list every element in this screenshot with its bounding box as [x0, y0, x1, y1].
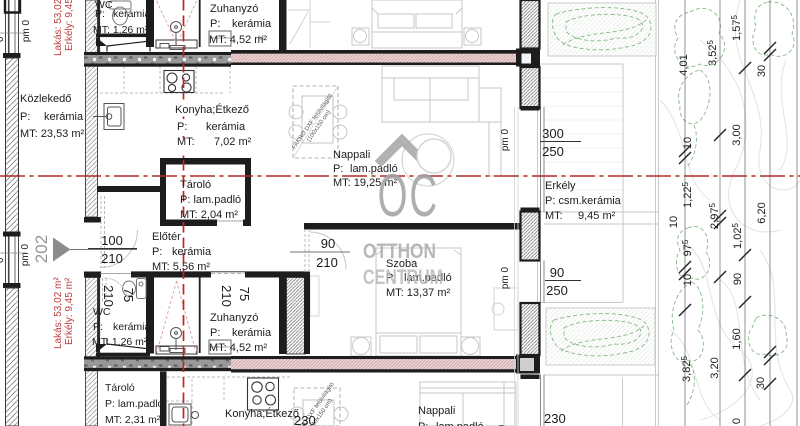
svg-text:Zuhanyzó: Zuhanyzó — [210, 312, 258, 324]
svg-text:Tároló: Tároló — [105, 382, 135, 394]
svg-text:MT: 5,56 m²: MT: 5,56 m² — [152, 261, 210, 273]
svg-text:MT: 23,53 m²: MT: 23,53 m² — [20, 128, 85, 140]
svg-text:kerámia: kerámia — [206, 121, 246, 133]
svg-text:Közlekedő: Közlekedő — [20, 93, 71, 105]
svg-text:MT:: MT: — [545, 210, 563, 222]
svg-text:P:: P: — [95, 8, 105, 20]
svg-text:0: 0 — [0, 36, 6, 42]
svg-text:P: lam.padló: P: lam.padló — [105, 398, 164, 410]
svg-text:OTTHON: OTTHON — [363, 240, 436, 263]
svg-text:0: 0 — [731, 418, 743, 424]
svg-text:pm 0: pm 0 — [500, 266, 511, 289]
svg-text:90: 90 — [321, 236, 335, 251]
svg-text:P:: P: — [152, 246, 162, 258]
svg-text:pm 0: pm 0 — [20, 243, 31, 266]
svg-text:MT: 2,04 m²: MT: 2,04 m² — [180, 209, 238, 221]
svg-text:P: csm.kerámia: P: csm.kerámia — [545, 195, 622, 207]
svg-text:MT: 1,26 m²: MT: 1,26 m² — [92, 336, 148, 348]
svg-text:1,60: 1,60 — [731, 328, 743, 349]
svg-text:Erkély: 9,45 m²: Erkély: 9,45 m² — [64, 277, 75, 345]
svg-text:210: 210 — [101, 251, 123, 266]
svg-text:100: 100 — [101, 233, 123, 248]
svg-text:Nappali: Nappali — [333, 149, 370, 161]
svg-text:WC: WC — [93, 306, 111, 318]
svg-text:MT:: MT: — [177, 136, 195, 148]
svg-text:Tároló: Tároló — [180, 179, 211, 191]
svg-text:9,45 m²: 9,45 m² — [578, 210, 616, 222]
svg-text:210: 210 — [219, 285, 234, 307]
svg-text:P:: P: — [20, 111, 30, 123]
svg-text:Lakás: 53,02 m²: Lakás: 53,02 m² — [53, 277, 64, 349]
svg-text:Erkély: 9,45 m²: Erkély: 9,45 m² — [64, 0, 75, 51]
svg-text:230: 230 — [294, 413, 316, 426]
svg-text:30: 30 — [756, 65, 768, 77]
svg-text:210: 210 — [316, 255, 338, 270]
svg-text:250: 250 — [546, 283, 568, 298]
svg-text:P:: P: — [418, 421, 428, 426]
svg-text:MT: 1,26 m²: MT: 1,26 m² — [93, 24, 149, 36]
svg-text:kerámia: kerámia — [44, 111, 84, 123]
svg-text:MT: 2,31 m²: MT: 2,31 m² — [105, 414, 161, 426]
svg-text:75: 75 — [121, 288, 136, 302]
svg-text:230: 230 — [544, 411, 566, 426]
svg-text:90: 90 — [732, 273, 744, 285]
svg-text:10: 10 — [682, 274, 694, 286]
svg-text:kerámia: kerámia — [113, 321, 151, 333]
svg-text:kerámia: kerámia — [232, 327, 272, 339]
svg-text:MT: 4,52 m²: MT: 4,52 m² — [209, 342, 267, 354]
svg-text:lam.padló: lam.padló — [436, 421, 484, 426]
svg-text:P: lam.padló: P: lam.padló — [180, 194, 241, 206]
svg-text:75: 75 — [237, 287, 252, 301]
svg-text:90: 90 — [550, 265, 564, 280]
svg-text:P:: P: — [210, 327, 220, 339]
svg-text:250: 250 — [542, 144, 564, 159]
svg-text:pm 0: pm 0 — [21, 19, 32, 42]
svg-text:OC: OC — [378, 161, 439, 229]
svg-text:MT: 4,52 m²: MT: 4,52 m² — [209, 34, 267, 46]
svg-text:Konyha;Étkező: Konyha;Étkező — [175, 103, 249, 116]
svg-text:Zuhanyzó: Zuhanyzó — [210, 3, 258, 15]
svg-text:Erkély: Erkély — [545, 180, 576, 192]
svg-text:3,00: 3,00 — [731, 124, 743, 145]
svg-text:0: 0 — [0, 257, 6, 263]
svg-text:10: 10 — [682, 137, 694, 149]
svg-text:3,20: 3,20 — [709, 357, 721, 378]
svg-text:300: 300 — [542, 126, 564, 141]
svg-text:202: 202 — [32, 235, 51, 263]
svg-text:P:: P: — [210, 18, 220, 30]
svg-text:7,02 m²: 7,02 m² — [214, 136, 252, 148]
svg-text:Nappali: Nappali — [418, 405, 455, 417]
svg-text:kerámia: kerámia — [172, 246, 212, 258]
svg-text:210: 210 — [101, 285, 116, 307]
svg-text:P:: P: — [333, 163, 343, 175]
svg-text:pm 0: pm 0 — [500, 128, 511, 151]
svg-text:CENTRUM: CENTRUM — [363, 266, 443, 289]
svg-text:Konyha;Étkező: Konyha;Étkező — [225, 407, 299, 420]
svg-text:kerámia: kerámia — [113, 8, 151, 20]
svg-text:P:: P: — [177, 121, 187, 133]
svg-text:P:: P: — [93, 321, 103, 333]
svg-text:4,01: 4,01 — [678, 54, 690, 75]
svg-text:10: 10 — [668, 216, 680, 228]
svg-text:30: 30 — [755, 377, 767, 389]
svg-text:6,20: 6,20 — [756, 202, 768, 223]
svg-text:Lakás: 53,02 m²: Lakás: 53,02 m² — [53, 0, 64, 56]
svg-text:kerámia: kerámia — [232, 18, 272, 30]
svg-text:Előtér: Előtér — [152, 231, 181, 243]
